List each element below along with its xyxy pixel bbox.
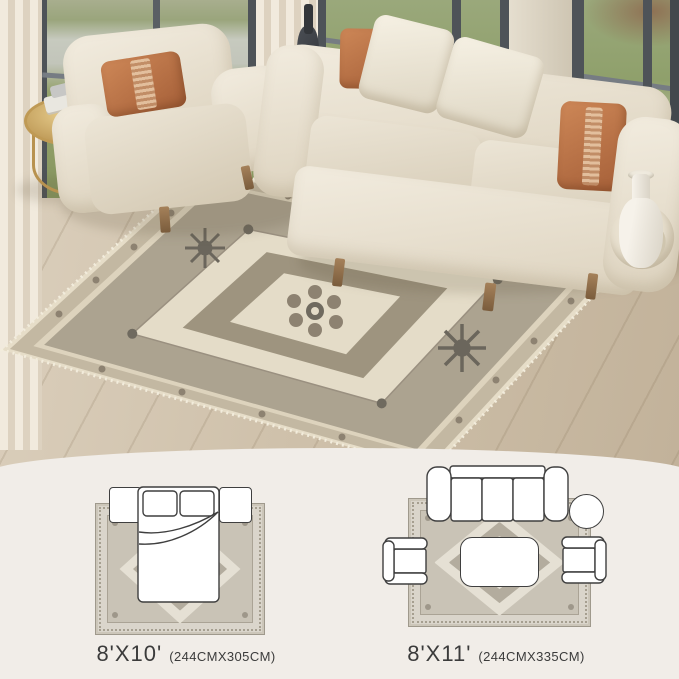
pillow-icon [180, 491, 214, 516]
sofa-leg [332, 258, 345, 287]
coffee-table-icon [460, 537, 539, 587]
rug-motif-dot [425, 604, 431, 610]
sofa-leg [482, 282, 496, 311]
size-label: 8'X10' [96, 641, 162, 667]
white-floor-vase [616, 170, 666, 274]
rug-motif-dot [568, 604, 574, 610]
sofa-cushion [513, 478, 544, 521]
armchair-icon [382, 537, 428, 585]
dimensions-label: (244CMX335CM) [478, 649, 584, 664]
vase-body [619, 198, 663, 268]
size-caption-8x10: 8'X10' (244CMX305CM) [66, 641, 306, 667]
rug-motif-dot [242, 612, 248, 618]
armchair-seat [563, 548, 595, 572]
sofa-cushion [482, 478, 513, 521]
pillow-band [130, 58, 157, 110]
sofa-icon [426, 465, 569, 523]
armchair-seat-cushion [83, 102, 254, 216]
dimensions-label: (244CMX305CM) [169, 649, 275, 664]
pillow-band [582, 107, 603, 185]
nightstand-icon [219, 487, 252, 523]
armchair-seat [394, 549, 426, 573]
sofa-cushion [451, 478, 482, 521]
sofa-leg [585, 273, 598, 300]
armchair-leg [159, 206, 171, 233]
size-caption-8x11: 8'X11' (244CMX335CM) [376, 641, 616, 667]
sofa-backrest [450, 466, 545, 478]
product-listing-image: 8'X10' (244CMX305CM) [0, 0, 679, 679]
armchair-icon [561, 536, 607, 584]
bed-icon [137, 486, 220, 603]
armchair-back [595, 540, 606, 580]
armchair-back [383, 541, 394, 581]
round-side-table-icon [569, 494, 604, 529]
size-label: 8'X11' [407, 641, 471, 667]
sofa-arm [544, 467, 568, 521]
rug-motif-dot [112, 612, 118, 618]
sofa [236, 12, 679, 362]
sofa-arm [427, 467, 451, 521]
pillow-icon [143, 491, 177, 516]
